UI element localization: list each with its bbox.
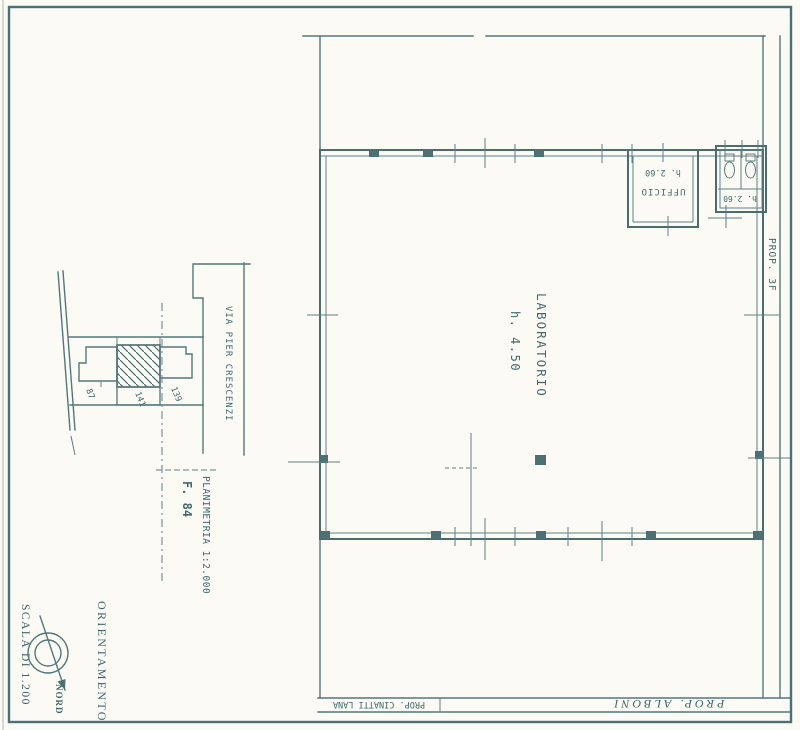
floor-plan-canvas: 87 141 139 VIA PIER CRESCENZI PLANIMETRI… [0, 0, 800, 730]
site-plan: 87 141 139 VIA PIER CRESCENZI PLANIMETRI… [58, 263, 250, 594]
title-block: PROP. CINATTI LANA PROP. ALBONI [318, 697, 791, 712]
ufficio-height-label: h. 2.60 [645, 167, 681, 177]
compass: NORD [28, 616, 68, 715]
owner-right-label: PROP. ALBONI [612, 697, 726, 711]
compass-inner-circle [35, 640, 61, 666]
parcel-strip: 87 141 139 [69, 337, 203, 408]
ufficio-room: h. 2.60 UFFICIO [628, 143, 698, 236]
main-plan: h. 2.60 UFFICIO h. 2.60 LABORA [288, 36, 790, 698]
neighbour-building-right [160, 347, 192, 378]
planimetria-label: PLANIMETRIA 1:2.000 [200, 476, 211, 594]
wc-height-label: h. 2.60 [723, 194, 757, 203]
parcel-number-139: 139 [168, 385, 183, 403]
planimetria-caption: PLANIMETRIA 1:2.000 F. 84 [180, 476, 211, 594]
scale-label: SCALA DI 1.200 [19, 604, 31, 706]
street-label: VIA PIER CRESCENZI [223, 306, 233, 422]
north-label: NORD [54, 684, 64, 715]
road-edge-lines [58, 271, 75, 455]
street-outline [193, 263, 250, 455]
laboratorio-height-label: h. 4.50 [508, 311, 522, 372]
ufficio-label: UFFICIO [641, 186, 686, 196]
subject-building-hatched [117, 345, 160, 387]
laboratorio-label: LABORATORIO [534, 293, 549, 398]
right-property-label: PROP. 3F [766, 238, 777, 292]
parcel-number-87: 87 [83, 387, 96, 400]
legend: SCALA DI 1.200 ORIENTAMENTO NORD [19, 601, 109, 723]
interior-column [535, 455, 546, 465]
sheet-number-label: F. 84 [180, 481, 194, 517]
wc-fixture-left [725, 154, 735, 178]
wc-fixture-right [746, 154, 756, 178]
owner-left-label: PROP. CINATTI LANA [333, 699, 425, 709]
orientation-label: ORIENTAMENTO [95, 601, 109, 723]
scanned-floor-plan-sheet: 87 141 139 VIA PIER CRESCENZI PLANIMETRI… [0, 0, 800, 730]
neighbour-building-left [79, 347, 117, 381]
